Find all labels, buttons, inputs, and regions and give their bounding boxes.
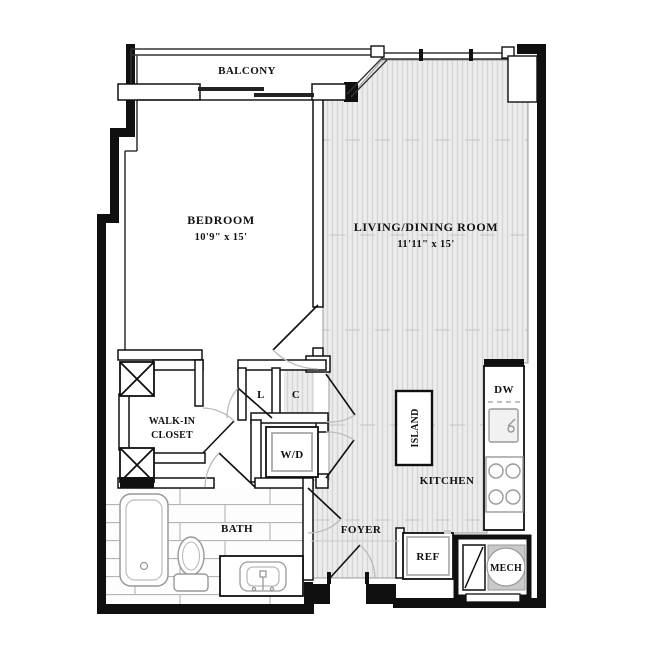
living-dims: 11'11" x 15' xyxy=(397,239,454,250)
bedroom-label: BEDROOM xyxy=(187,213,255,227)
island-label: ISLAND xyxy=(410,409,421,448)
kitchen-label: KITCHEN xyxy=(420,475,475,487)
linen-closet-label: L xyxy=(257,389,265,401)
bath-label: BATH xyxy=(221,523,253,535)
mech-legs xyxy=(466,594,520,602)
floor-plan: BALCONY BEDROOM 10'9" x 15' LIVING/DININ… xyxy=(0,0,650,650)
vanity xyxy=(220,556,303,596)
sink-icon xyxy=(489,409,518,442)
washer-dryer-label: W/D xyxy=(280,449,303,461)
column-x-icon xyxy=(120,362,154,396)
bedroom-balcony-wall xyxy=(118,84,346,100)
column-base xyxy=(120,477,154,488)
mech-panel-icon xyxy=(463,545,485,590)
coat-closet-label: C xyxy=(292,389,300,401)
walk-in-closet-label-2: CLOSET xyxy=(151,430,193,441)
door-swing-walk-in-closet xyxy=(203,408,234,453)
refrigerator-label: REF xyxy=(416,551,439,563)
dishwasher-label: DW xyxy=(494,384,514,396)
floor-plan-canvas: BALCONY BEDROOM 10'9" x 15' LIVING/DININ… xyxy=(0,0,650,650)
mech-label: MECH xyxy=(490,563,522,574)
living-label: LIVING/DINING ROOM xyxy=(354,220,498,234)
column-x-icon xyxy=(120,448,154,482)
bathtub-icon xyxy=(120,494,168,586)
foyer-label: FOYER xyxy=(341,524,382,536)
bedroom-dims: 10'9" x 15' xyxy=(195,232,248,243)
walk-in-closet-label-1: WALK-IN xyxy=(149,416,196,427)
sliding-door-panel xyxy=(254,93,314,97)
sliding-door-panel xyxy=(198,87,264,91)
balcony-label: BALCONY xyxy=(218,65,276,77)
stove-icon xyxy=(486,457,523,512)
